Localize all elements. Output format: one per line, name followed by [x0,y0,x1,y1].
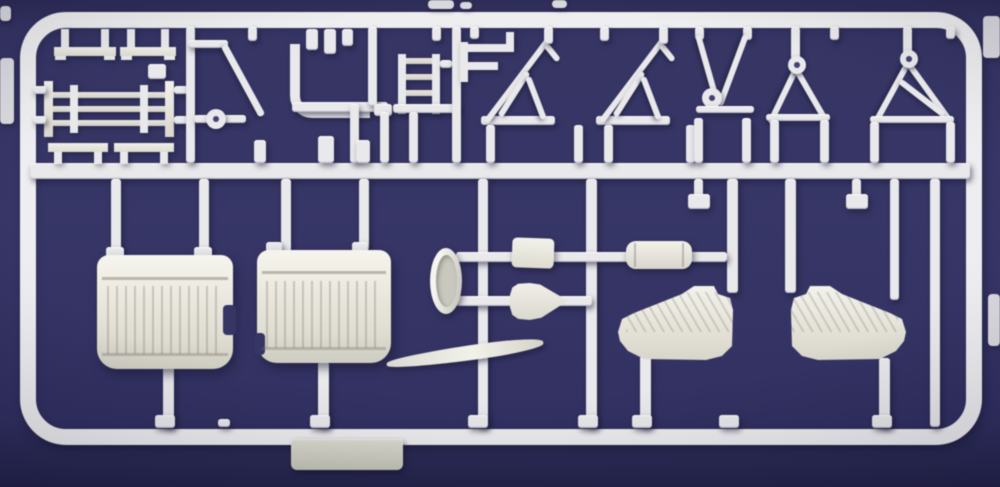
sprue-photo [0,0,1000,487]
strut-joint-boss [788,56,806,74]
edge-fragment [988,294,1000,346]
runner-stub [659,27,668,44]
vertical-runner [368,27,377,106]
strut-tie-bar [696,106,754,113]
small-tab [318,136,334,163]
runner-stub [33,116,46,124]
sprue-layer [0,0,1000,487]
gate-nub [218,419,230,427]
ball-joint [206,109,226,129]
cowling-cutout [223,305,236,335]
runner-stub [544,27,553,44]
bench-bracket [120,29,176,60]
sprue-middle-rail [30,163,970,179]
vertical-runner [770,120,779,163]
edge-fragment [0,6,11,21]
small-tab [356,140,370,163]
f-bracket [460,32,514,82]
small-tab [324,29,336,54]
bench-bracket [48,143,108,164]
sprue-gate [830,27,839,40]
strut-joint-boss [702,88,722,108]
vertical-runner [574,125,583,163]
bench-bracket [54,29,116,60]
molding-tab-plate [291,439,403,470]
small-tab [342,29,353,46]
sprue-gate [600,27,609,41]
gate-pad [155,415,175,428]
vertical-runner [890,179,899,300]
vertical-runner [946,122,955,163]
runner-bar [393,104,460,113]
vertical-runner [281,179,291,252]
engine-cylinder-block [44,80,174,138]
vertical-runner [380,112,389,163]
small-block [511,237,554,268]
cowling-cutout [254,333,265,355]
gate-pad [872,415,892,428]
strut-joint-boss [900,50,918,68]
vertical-runner [785,179,796,293]
gate-pad [578,415,598,428]
sprue-gate [432,27,441,41]
fuel-tank-cylinder [626,241,692,269]
sprue-gate [946,27,955,39]
runner-stub [33,86,46,94]
engine-cowling-half-left [97,255,233,369]
vertical-runner [111,179,121,257]
vertical-runner [409,112,418,163]
strut-tie-bar [870,116,954,123]
gate-pad [846,194,868,209]
bench-bracket [114,143,174,164]
cowl-ring-disc [430,248,462,314]
sprue-gate [248,27,257,41]
gate-pad [632,415,652,428]
small-tab [254,140,266,163]
vertical-runner [604,125,613,163]
runner-stub [440,60,452,68]
vertical-runner [694,118,703,163]
engine-cowling-half-right [257,250,391,363]
vertical-runner [930,179,940,427]
edge-fragment [983,16,1000,58]
gate-pad [468,415,488,428]
small-tab [306,29,318,50]
vertical-runner [742,118,751,163]
edge-fragment [428,0,454,9]
edge-fragment [552,0,567,8]
edge-fragment [0,58,14,124]
gate-pad [688,194,710,209]
gate-pad [310,415,330,428]
vertical-runner [486,125,495,163]
vertical-runner [199,179,209,257]
gate-pad [148,64,166,79]
edge-fragment [460,2,472,9]
vertical-runner [820,120,829,163]
gate-pad [719,415,739,428]
vertical-runner [727,179,738,293]
vertical-runner [359,179,369,251]
vertical-runner [870,122,879,163]
